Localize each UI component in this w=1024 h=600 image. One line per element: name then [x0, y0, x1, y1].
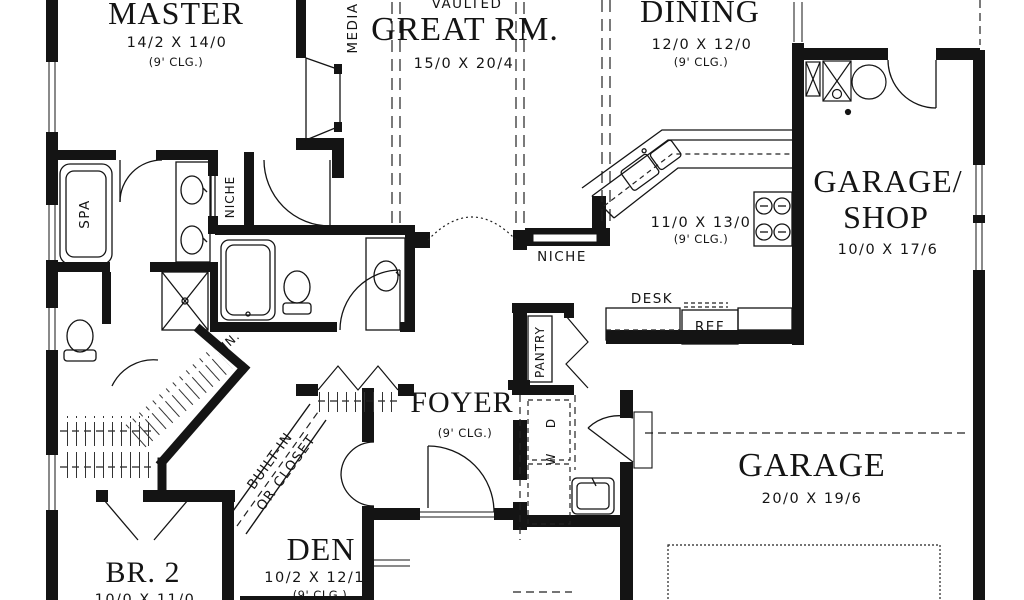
dining-dims: 12/0 X 12/0	[652, 37, 753, 53]
built-in-shelving	[228, 404, 326, 534]
floor-plan-drawing: VAULTED GREAT RM. 15/0 X 20/4 MASTER 14/…	[0, 0, 1024, 600]
niche-master-label: NICHE	[223, 176, 237, 219]
washer-label: W	[544, 453, 558, 466]
master-ceiling: (9' CLG.)	[149, 55, 204, 69]
niche-hall-label: NICHE	[537, 249, 587, 265]
fixtures	[60, 58, 886, 566]
ref-label: REF	[695, 319, 725, 335]
den-ceiling: (9' CLG.)	[293, 588, 348, 600]
kitchen-sink	[617, 133, 683, 192]
spa-label: SPA	[77, 199, 93, 229]
kitchen-ceiling: (9' CLG.)	[674, 232, 729, 246]
bedroom2-dims: 10/0 X 11/0	[95, 592, 196, 600]
desk-label: DESK	[631, 291, 673, 307]
water-heater	[852, 65, 886, 99]
laundry-sink	[572, 478, 614, 514]
closet-rod-hatching	[60, 347, 398, 482]
hall-bath-tub	[221, 240, 275, 320]
dryer-label: D	[544, 418, 558, 428]
great-room-dims: 15/0 X 20/4	[414, 56, 515, 72]
master-toilet	[64, 320, 96, 361]
garage-title: GARAGE	[738, 447, 886, 484]
dining-ceiling: (9' CLG.)	[674, 55, 729, 69]
garage-shop-title-2: SHOP	[843, 199, 929, 235]
shower	[162, 272, 208, 330]
pantry-label: PANTRY	[533, 326, 547, 378]
floor-plan-sheet: VAULTED GREAT RM. 15/0 X 20/4 MASTER 14/…	[0, 0, 1024, 600]
media-label: MEDIA	[345, 2, 361, 53]
den-closet-bifold	[318, 366, 398, 390]
hall-bath-vanity	[366, 238, 405, 330]
bedroom2-title: BR. 2	[105, 556, 180, 589]
shop-utility-fixtures	[806, 61, 886, 115]
kitchen-counters	[582, 130, 792, 218]
garage-shop-dims: 10/0 X 17/6	[838, 242, 939, 258]
great-room-title: GREAT RM.	[371, 11, 559, 48]
interior-walls	[46, 0, 792, 600]
hall-bath-toilet	[283, 271, 311, 314]
dining-title: DINING	[640, 0, 760, 29]
master-dims: 14/2 X 14/0	[127, 35, 228, 51]
garage-dims: 20/0 X 19/6	[762, 491, 863, 507]
foyer-ceiling: (9' CLG.)	[438, 426, 493, 440]
master-title: MASTER	[108, 0, 244, 31]
garage-shop-title-1: GARAGE/	[813, 163, 962, 199]
foyer-title: FOYER	[410, 386, 513, 419]
den-dims: 10/2 X 12/10	[264, 570, 376, 586]
range-cooktop	[754, 192, 792, 246]
master-vanity-sinks	[176, 162, 210, 262]
dashed-lines	[60, 0, 980, 600]
garage-step	[634, 412, 652, 468]
den-title: DEN	[287, 531, 356, 567]
kitchen-dims: 11/0 X 13/0	[651, 215, 752, 231]
